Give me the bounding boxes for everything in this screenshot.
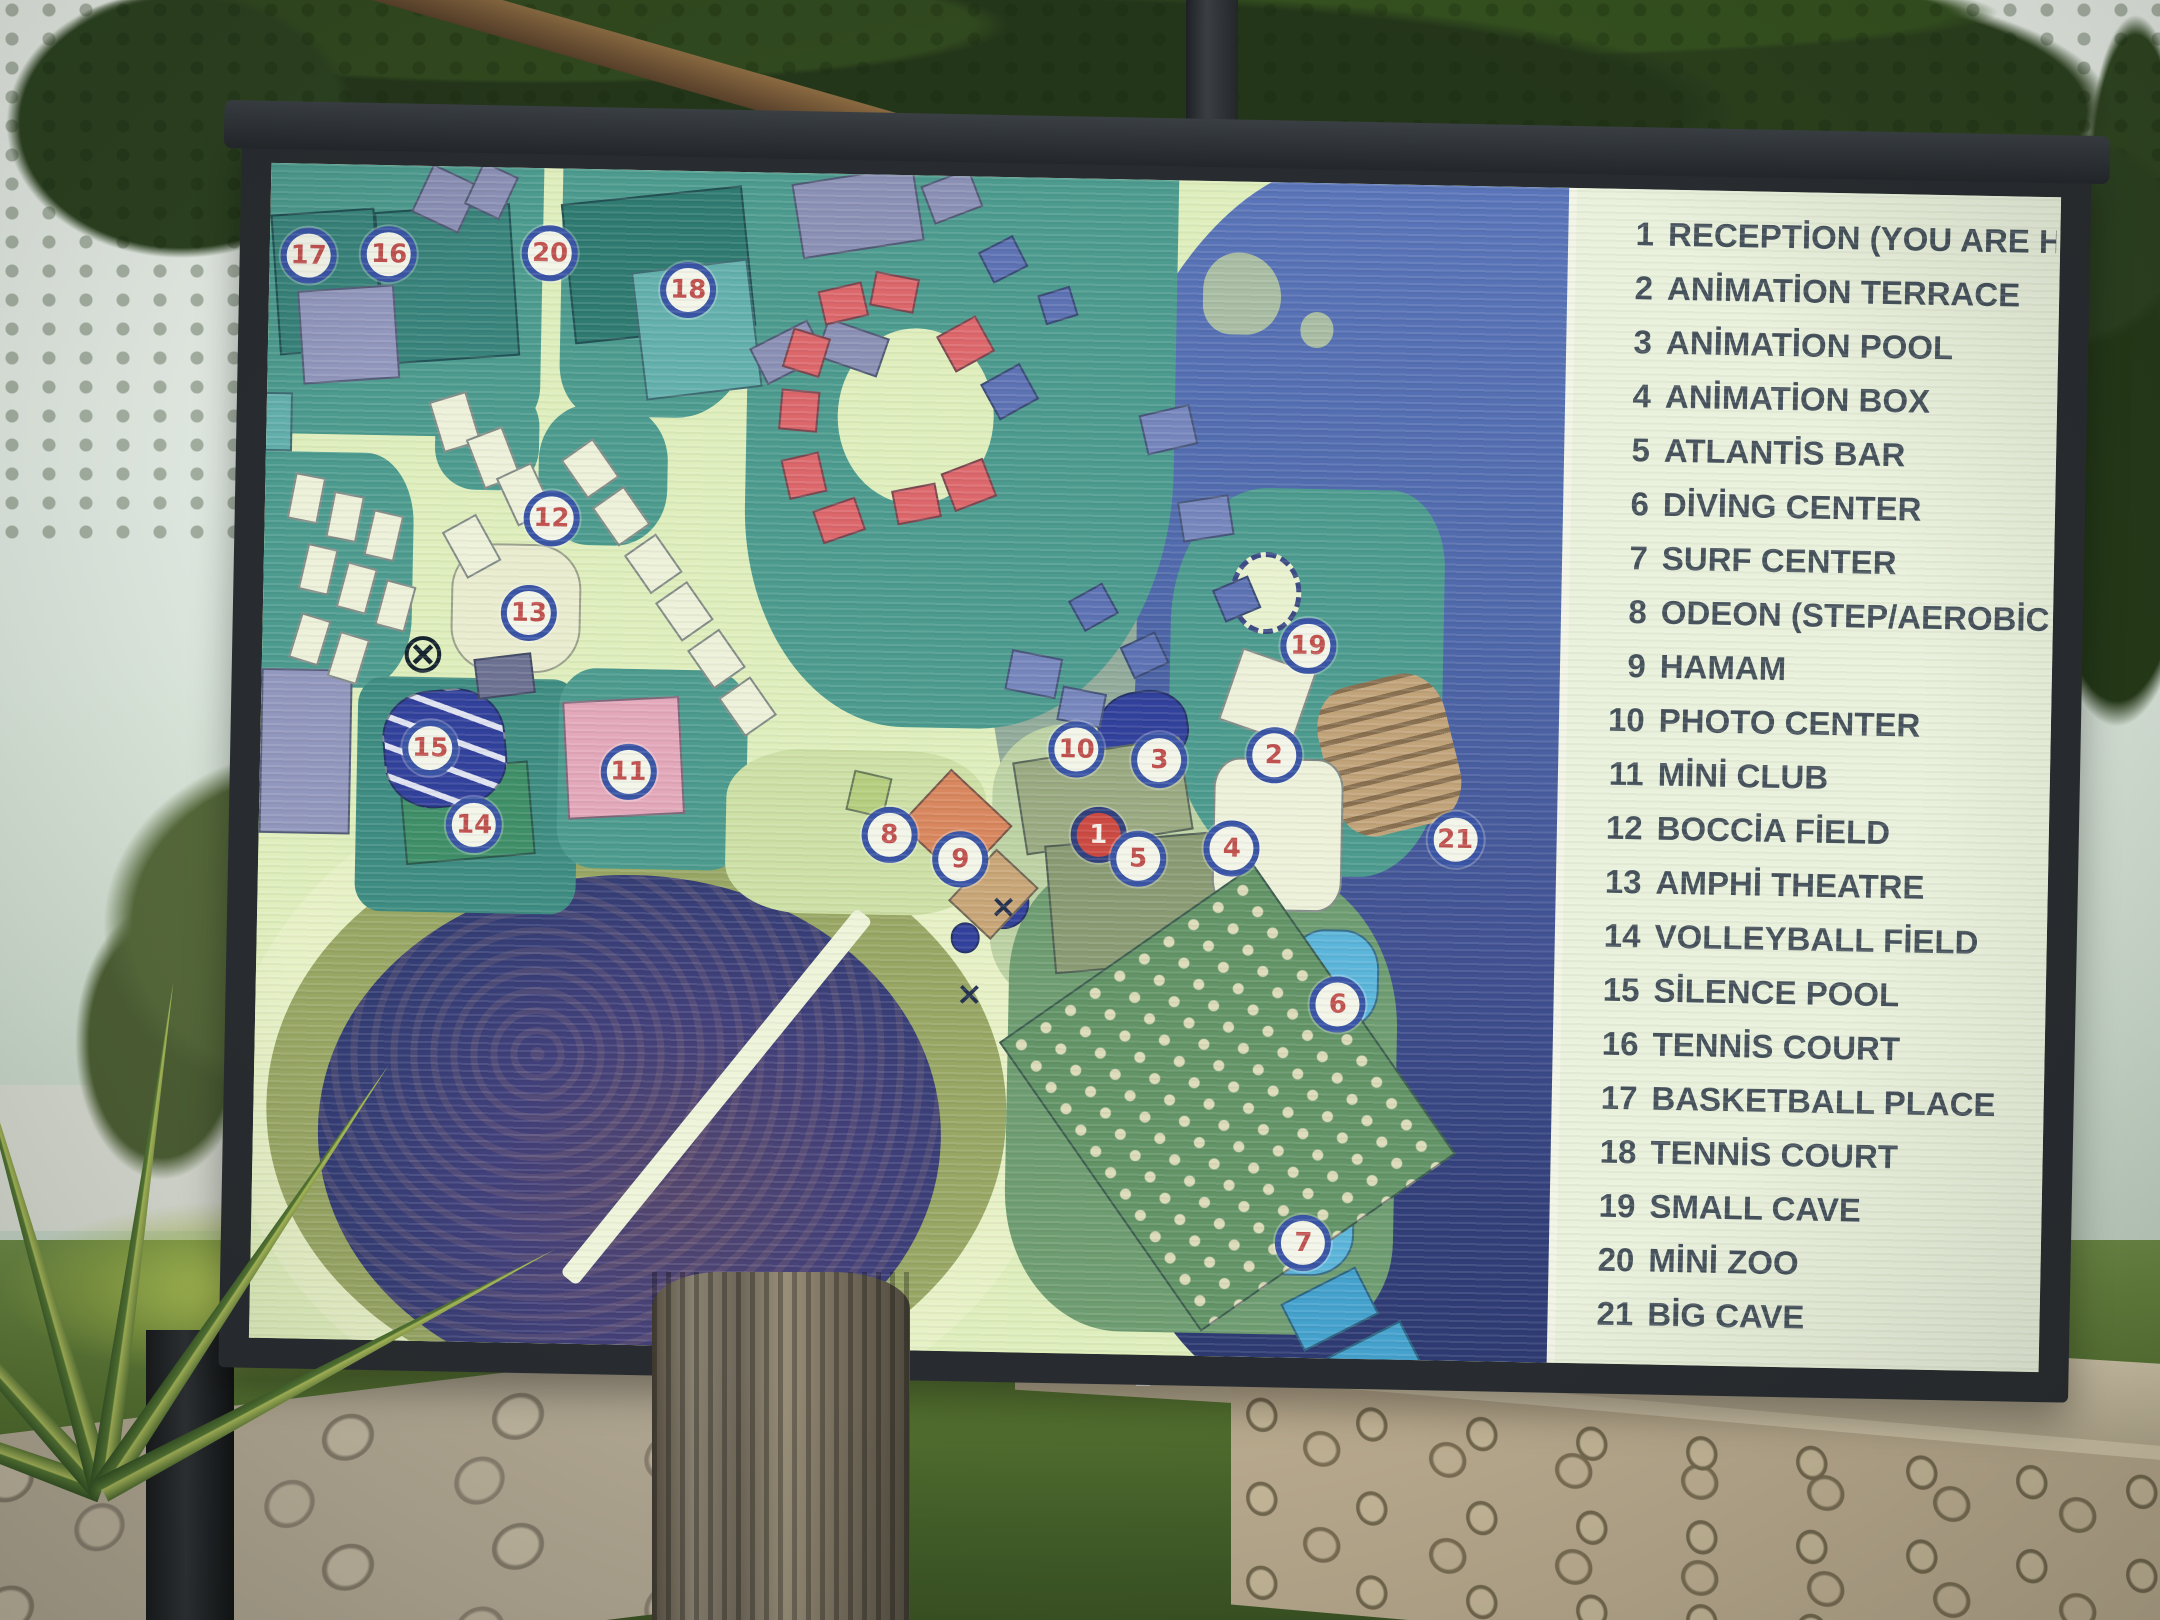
legend-item-number: 14	[1584, 916, 1641, 955]
legend-item-label: MİNİ CLUB	[1657, 756, 1828, 797]
map-building	[298, 285, 401, 385]
legend-item-number: 21	[1577, 1294, 1634, 1333]
legend-item-label: TENNİS COURT	[1652, 1026, 1900, 1069]
legend-item-17: 17BASKETBALL PLACE	[1581, 1078, 2040, 1141]
legend-item-number: 7	[1592, 538, 1649, 577]
legend-item-number: 15	[1583, 970, 1640, 1009]
legend-item-label: VOLLEYBALL FİELD	[1654, 918, 1979, 962]
legend-item-label: ATLANTİS BAR	[1664, 432, 1906, 475]
x-mark-icon: ×	[990, 886, 1018, 925]
map-marker-11: 11	[600, 743, 657, 800]
legend-item-13: 13AMPHİ THEATRE	[1585, 862, 2044, 925]
map-building	[951, 922, 980, 953]
legend-item-number: 18	[1580, 1132, 1637, 1171]
legend-item-label: ODEON (STEP/AEROBİC PLACE)	[1660, 594, 2056, 642]
legend-item-number: 5	[1594, 430, 1651, 469]
legend-item-20: 20MİNİ ZOO	[1578, 1240, 2037, 1303]
legend-item-5: 5ATLANTİS BAR	[1593, 430, 2052, 493]
legend-item-label: RECEPTİON (YOU ARE HERE)	[1668, 216, 2057, 263]
legend-panel: 1RECEPTİON (YOU ARE HERE)2ANİMATİON TERR…	[1546, 188, 2061, 1372]
legend-item-18: 18TENNİS COURT	[1580, 1132, 2039, 1195]
agave-leaf	[0, 993, 114, 1493]
agave-leaf	[89, 980, 186, 1492]
legend-item-label: ANİMATİON TERRACE	[1667, 270, 2021, 315]
legend-item-label: SMALL CAVE	[1649, 1188, 1861, 1230]
map-signboard: ⊗×× 123456789101112131415161718192021 1R…	[218, 132, 2091, 1402]
legend-item-1: 1RECEPTİON (YOU ARE HERE)	[1597, 214, 2056, 277]
crossed-circle-icon: ⊗	[399, 625, 447, 682]
legend-item-number: 4	[1595, 376, 1652, 415]
legend-item-label: AMPHİ THEATRE	[1655, 864, 1925, 907]
map-building	[474, 652, 537, 700]
map-building	[253, 392, 293, 451]
tree-trunk-foreground	[652, 1272, 910, 1620]
legend-item-label: TENNİS COURT	[1650, 1134, 1898, 1177]
legend-item-3: 3ANİMATİON POOL	[1595, 322, 2054, 385]
legend-item-label: ANİMATİON BOX	[1665, 378, 1931, 421]
map-marker-15: 15	[402, 719, 459, 776]
legend-item-label: HAMAM	[1659, 648, 1786, 688]
islet	[1300, 312, 1334, 348]
legend-item-number: 9	[1589, 646, 1646, 685]
legend-item-15: 15SİLENCE POOL	[1583, 970, 2042, 1033]
legend-item-number: 19	[1579, 1186, 1636, 1225]
agave-plant	[0, 907, 270, 1490]
legend-item-14: 14VOLLEYBALL FİELD	[1584, 916, 2043, 979]
legend-item-label: PHOTO CENTER	[1658, 702, 1920, 745]
x-mark-icon: ×	[956, 974, 984, 1013]
resort-map: ⊗×× 123456789101112131415161718192021	[249, 163, 1569, 1363]
legend-item-label: MİNİ ZOO	[1648, 1242, 1799, 1283]
legend-item-label: SURF CENTER	[1661, 540, 1896, 582]
legend-item-label: DİVİNG CENTER	[1663, 486, 1922, 529]
legend-item-number: 10	[1588, 700, 1645, 739]
legend-item-7: 7SURF CENTER	[1591, 538, 2050, 601]
legend-item-label: SİLENCE POOL	[1653, 972, 1899, 1015]
resort-map-sign-photo: ⊗×× 123456789101112131415161718192021 1R…	[0, 0, 2160, 1620]
legend-item-number: 8	[1590, 592, 1647, 631]
map-building	[1177, 494, 1235, 543]
legend-item-8: 8ODEON (STEP/AEROBİC PLACE)	[1590, 592, 2049, 655]
legend-item-2: 2ANİMATİON TERRACE	[1596, 268, 2055, 331]
legend-item-4: 4ANİMATİON BOX	[1594, 376, 2053, 439]
legend-item-number: 1	[1598, 214, 1655, 253]
legend-item-10: 10PHOTO CENTER	[1588, 700, 2047, 763]
legend-item-number: 12	[1586, 808, 1643, 847]
map-building	[778, 389, 820, 433]
legend-item-16: 16TENNİS COURT	[1582, 1024, 2041, 1087]
legend-item-12: 12BOCCİA FİELD	[1586, 808, 2045, 871]
legend-list: 1RECEPTİON (YOU ARE HERE)2ANİMATİON TERR…	[1575, 214, 2057, 1372]
legend-item-number: 17	[1581, 1078, 1638, 1117]
legend-item-label: ANİMATİON POOL	[1666, 324, 1954, 368]
legend-item-11: 11MİNİ CLUB	[1587, 754, 2046, 817]
map-marker-17: 17	[280, 227, 337, 284]
map-building	[259, 668, 353, 834]
map-building	[624, 534, 683, 595]
legend-item-number: 20	[1578, 1240, 1635, 1279]
legend-item-21: 21BİG CAVE	[1577, 1294, 2036, 1357]
legend-item-label: BOCCİA FİELD	[1656, 810, 1890, 852]
legend-item-number: 6	[1593, 484, 1650, 523]
legend-item-19: 19SMALL CAVE	[1579, 1186, 2038, 1249]
legend-item-number: 11	[1587, 754, 1644, 793]
map-building	[655, 581, 714, 642]
legend-item-6: 6DİVİNG CENTER	[1592, 484, 2051, 547]
sign-panel: ⊗×× 123456789101112131415161718192021 1R…	[249, 163, 2061, 1372]
legend-item-label: BİG CAVE	[1647, 1296, 1805, 1337]
legend-item-number: 2	[1597, 268, 1654, 307]
legend-item-9: 9HAMAM	[1589, 646, 2048, 709]
legend-item-number: 3	[1596, 322, 1653, 361]
legend-item-number: 13	[1585, 862, 1642, 901]
legend-item-number: 16	[1582, 1024, 1639, 1063]
legend-item-label: BASKETBALL PLACE	[1651, 1080, 1996, 1125]
